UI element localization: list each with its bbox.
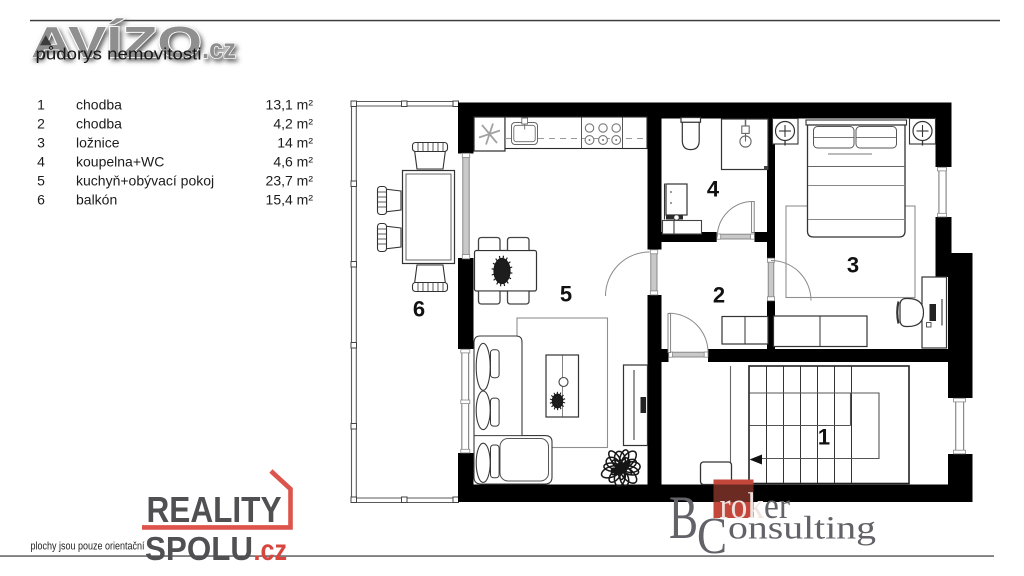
svg-text:SPOLU: SPOLU [145,531,253,568]
svg-text:14 m²: 14 m² [277,134,313,150]
svg-text:4,6 m²: 4,6 m² [273,154,313,170]
svg-text:půdorys nemovitosti: půdorys nemovitosti [36,46,202,64]
svg-text:3: 3 [37,134,45,150]
svg-text:balkón: balkón [76,192,117,208]
svg-text:5: 5 [560,282,572,307]
svg-text:3: 3 [847,253,859,278]
svg-text:chodba: chodba [76,96,122,112]
svg-text:.cz: .cz [202,33,236,64]
svg-text:2: 2 [713,283,725,308]
svg-text:ložnice: ložnice [76,134,120,150]
svg-text:chodba: chodba [76,116,122,132]
svg-text:15,4 m²: 15,4 m² [266,192,314,208]
svg-text:onsulting: onsulting [728,511,876,547]
svg-text:4,2 m²: 4,2 m² [273,116,313,132]
svg-text:6: 6 [37,192,45,208]
svg-text:koupelna+WC: koupelna+WC [76,154,164,170]
svg-text:.cz: .cz [254,534,288,567]
svg-text:5: 5 [37,173,45,189]
svg-text:4: 4 [37,154,45,170]
svg-text:C: C [697,508,727,565]
svg-text:1: 1 [818,425,830,450]
svg-text:B: B [669,485,698,552]
svg-text:23,7 m²: 23,7 m² [266,173,314,189]
svg-text:2: 2 [37,116,45,132]
svg-text:REALITY: REALITY [147,489,282,530]
svg-text:6: 6 [413,297,425,322]
svg-text:13,1 m²: 13,1 m² [266,96,314,112]
svg-text:1: 1 [37,96,45,112]
svg-text:kuchyň+obývací pokoj: kuchyň+obývací pokoj [76,173,214,189]
svg-text:plochy jsou pouze orientační: plochy jsou pouze orientační [31,541,145,553]
svg-text:4: 4 [707,177,720,202]
